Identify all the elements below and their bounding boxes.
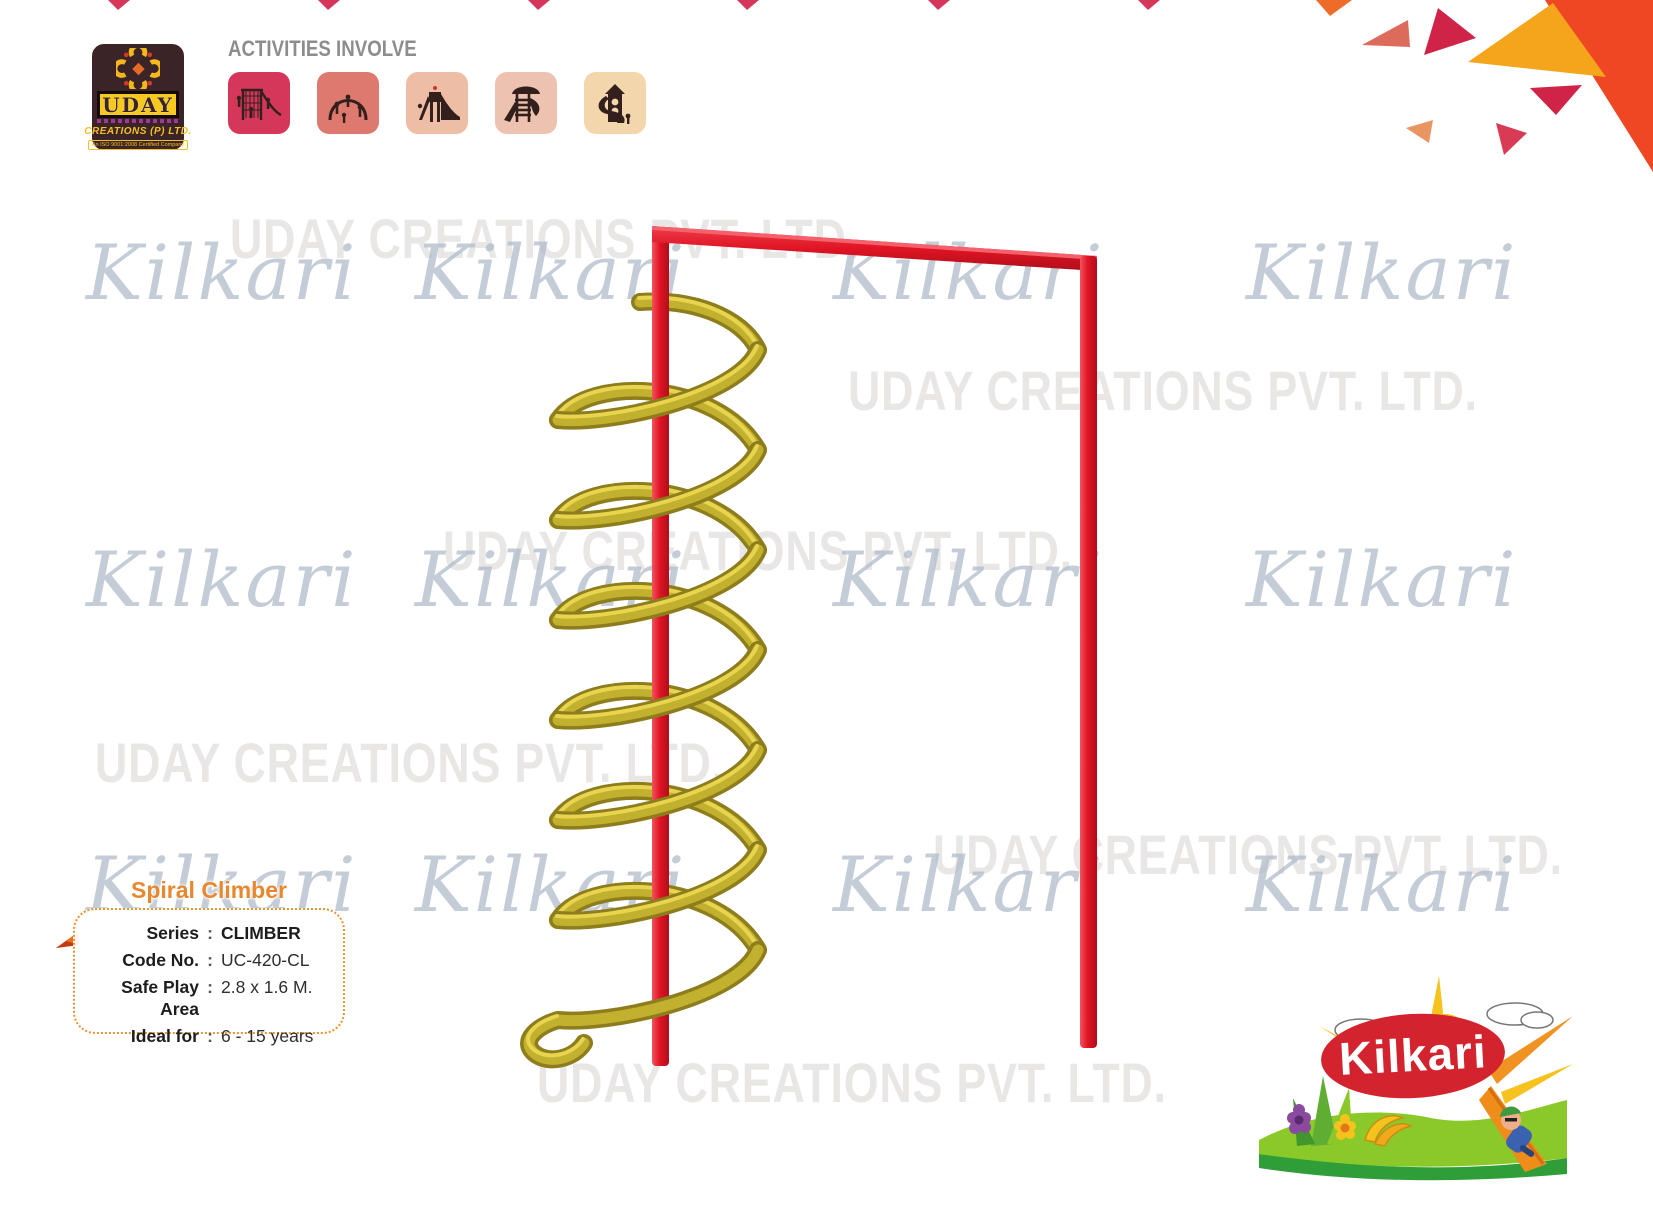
watermark-brand: Kilkari xyxy=(415,840,686,929)
spec-label: Safe Play Area xyxy=(81,976,199,1020)
banana-icon xyxy=(1375,1124,1411,1146)
watermark-company: UDAY CREATIONS PVT. LTD. xyxy=(230,206,860,271)
watermark-brand: Kilkari xyxy=(1246,228,1517,317)
product-spec-box: Series : CLIMBER Code No. : UC-420-CL Sa… xyxy=(73,908,345,1034)
spec-value: UC-420-CL xyxy=(221,949,329,971)
slide-icon xyxy=(1479,1086,1547,1172)
watermark-brand: Kilkari xyxy=(833,228,1104,317)
watermark-company: UDAY CREATIONS PVT. LTD. xyxy=(933,822,1563,887)
spec-label: Ideal for xyxy=(81,1025,199,1047)
spec-label: Series xyxy=(81,922,199,944)
catalog-page: UDAY CREATIONS PVT. LTD. UDAY CREATIONS … xyxy=(0,0,1653,1216)
watermark-brand: Kilkari xyxy=(415,535,686,624)
watermark-company: UDAY CREATIONS PVT. LTD. xyxy=(537,1050,1167,1115)
spec-value: 2.8 x 1.6 M. xyxy=(221,976,329,998)
watermark-brand: Kilkari xyxy=(415,228,686,317)
spec-value: 6 - 15 years xyxy=(221,1025,329,1047)
watermark-brand: Kilkari xyxy=(86,228,357,317)
watermark-brand: Kilkari xyxy=(833,535,1104,624)
spec-row-series: Series : CLIMBER xyxy=(81,922,329,944)
uday-wordmark-box: UDAY xyxy=(97,91,179,118)
spec-separator: : xyxy=(199,1025,221,1047)
net-climber-icon xyxy=(228,72,290,134)
spec-separator: : xyxy=(199,949,221,971)
tower-slide-icon xyxy=(406,72,468,134)
left-pole xyxy=(652,228,669,1066)
flower-icon xyxy=(1287,1104,1311,1134)
spec-row-code: Code No. : UC-420-CL xyxy=(81,949,329,971)
watermark-brand: Kilkari xyxy=(1246,535,1517,624)
product-title: Spiral Climber xyxy=(73,877,345,904)
spec-label: Code No. xyxy=(81,949,199,971)
watermark-company: UDAY CREATIONS PVT. LTD. xyxy=(443,518,1073,583)
corner-triangle xyxy=(1545,0,1653,172)
uday-creations-logo: UDAY CREATIONS (P) LTD. An ISO 9001:2008… xyxy=(90,42,186,152)
activities-label: ACTIVITIES INVOLVE xyxy=(228,36,583,62)
spiral-tower-slide-icon xyxy=(584,72,646,134)
spiral-back-coils xyxy=(557,297,758,950)
watermark-brand: Kilkari xyxy=(833,840,1104,929)
spec-row-safe-play-area: Safe Play Area : 2.8 x 1.6 M. xyxy=(81,976,329,1020)
uday-wordmark: UDAY xyxy=(102,93,174,117)
spec-separator: : xyxy=(199,976,221,998)
cloud-icon xyxy=(1335,1003,1553,1044)
spec-separator: : xyxy=(199,922,221,944)
spiral-front-coils xyxy=(528,346,758,1059)
flower-icon xyxy=(1334,1114,1356,1140)
umbrella-tower-slide-icon xyxy=(495,72,557,134)
banana-icon xyxy=(1365,1116,1403,1142)
kid-icon xyxy=(1500,1107,1535,1158)
uday-mandala-icon xyxy=(116,48,160,89)
right-pole xyxy=(1080,256,1097,1048)
watermark-brand: Kilkari xyxy=(86,535,357,624)
watermark-company: UDAY CREATIONS PVT. LTD. xyxy=(848,358,1478,423)
arch-climber-icon xyxy=(317,72,379,134)
spec-row-ideal-for: Ideal for : 6 - 15 years xyxy=(81,1025,329,1047)
watermark-brand: Kilkari xyxy=(1246,840,1517,929)
top-bar xyxy=(652,226,1097,271)
watermark-company: UDAY CREATIONS PVT. LTD. xyxy=(95,730,725,795)
kilkari-wordmark: Kilkari xyxy=(1338,1025,1488,1085)
activities-section: ACTIVITIES INVOLVE xyxy=(228,36,646,134)
kilkari-logo: Kilkari xyxy=(1253,968,1573,1216)
spec-value: CLIMBER xyxy=(221,922,329,944)
activity-icon-row xyxy=(228,72,646,134)
uday-subtitle: CREATIONS (P) LTD. xyxy=(84,126,192,137)
uday-zip-strip xyxy=(97,119,179,123)
uday-certification: An ISO 9001:2008 Certified Company xyxy=(88,140,188,150)
